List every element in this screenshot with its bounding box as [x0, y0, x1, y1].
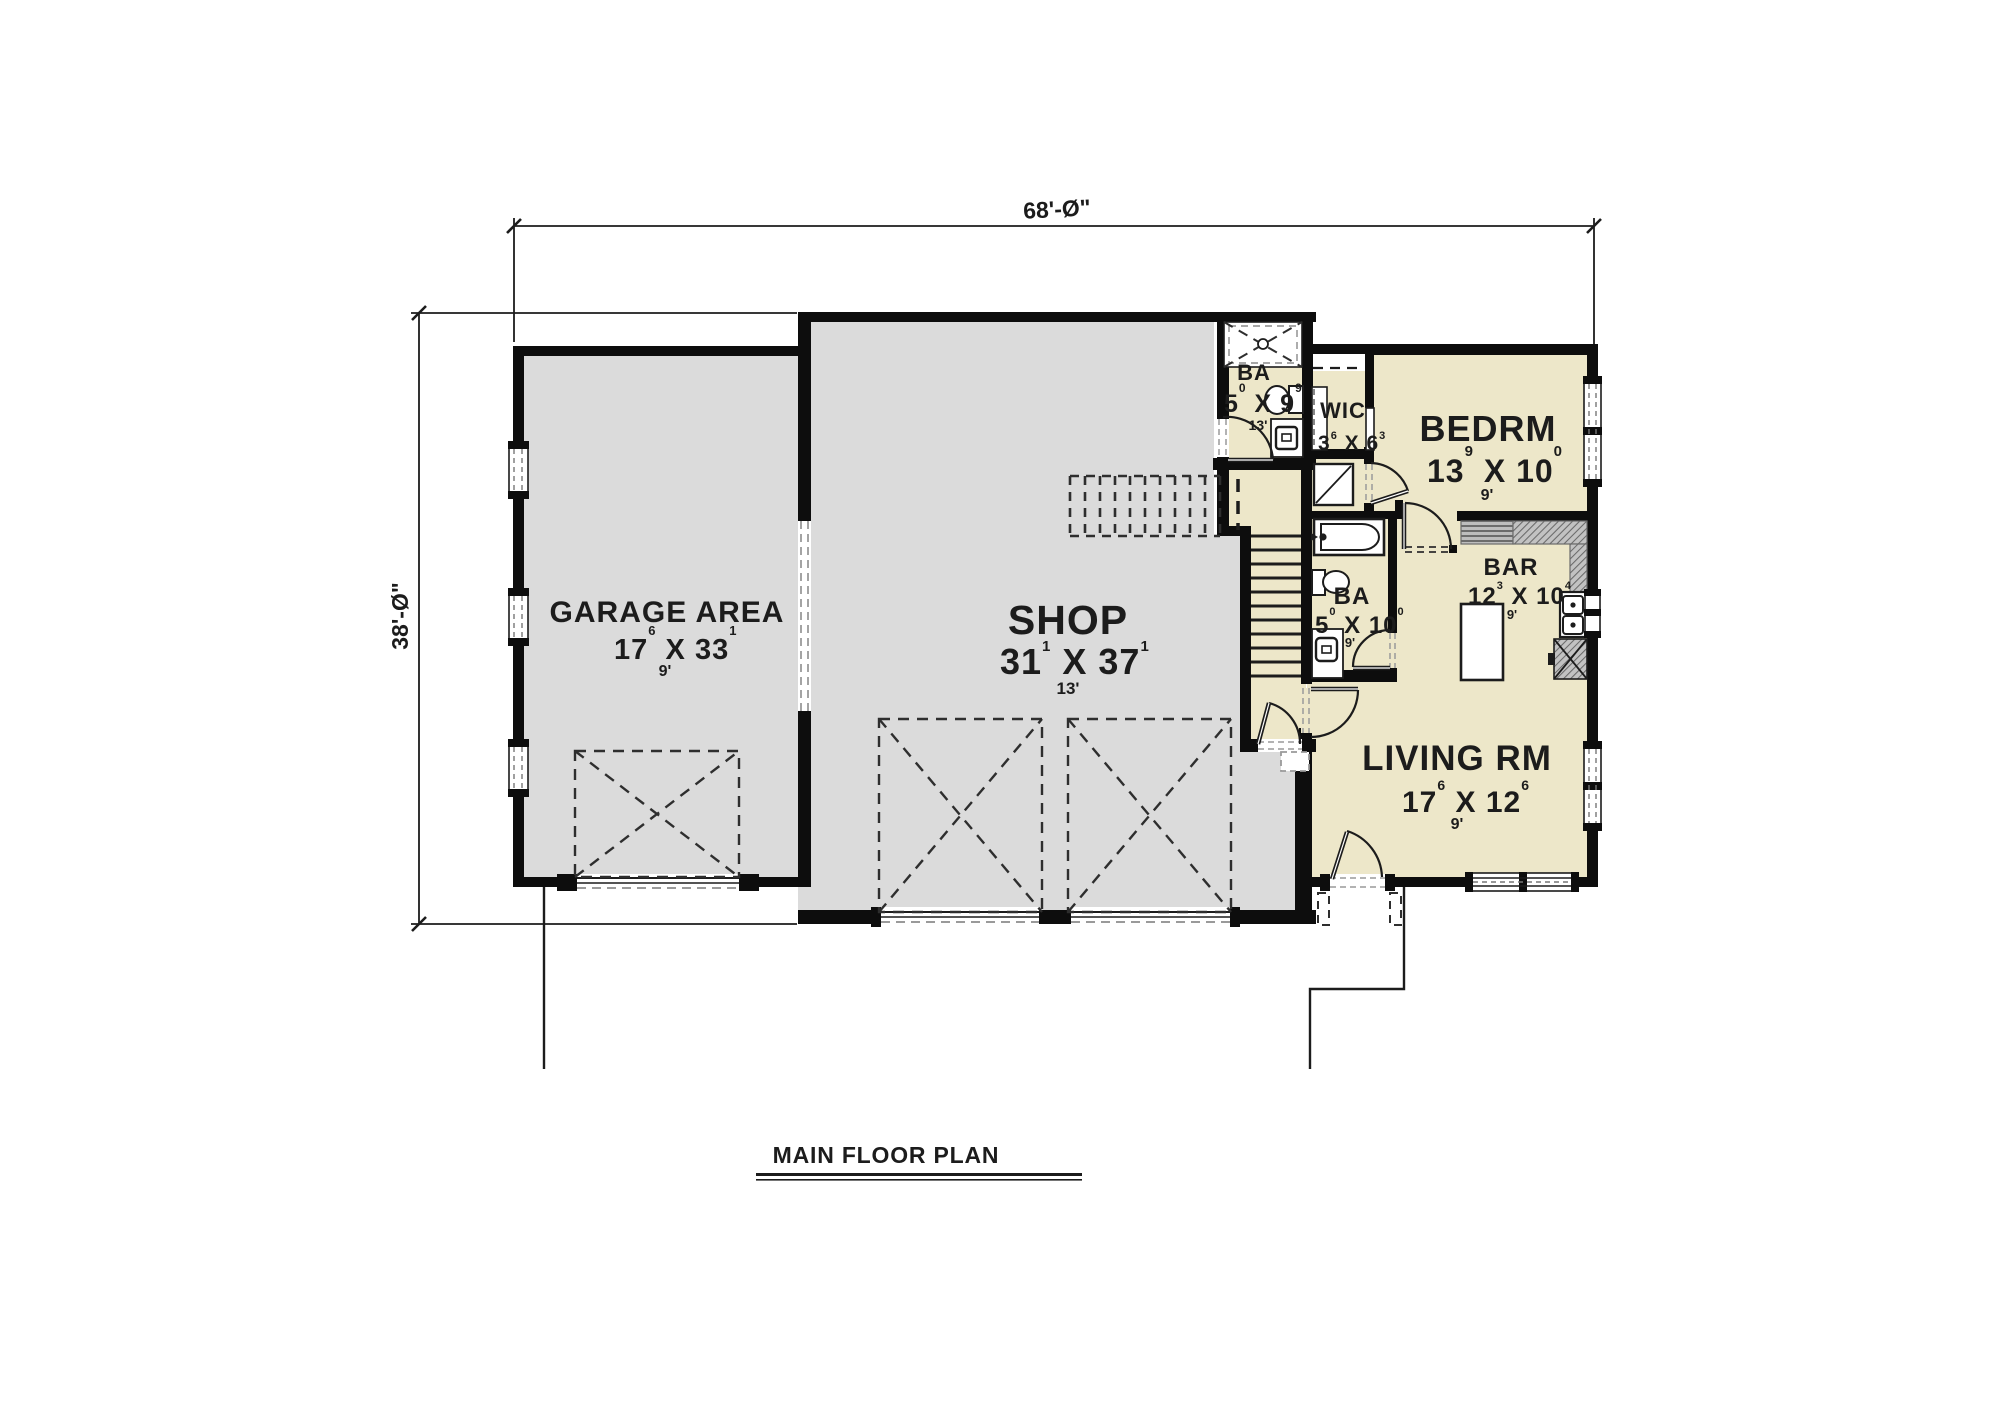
- svg-text:13': 13': [1249, 417, 1268, 433]
- svg-text:311 X 371: 311 X 371: [1000, 638, 1150, 682]
- svg-text:9': 9': [1481, 487, 1494, 504]
- svg-text:GARAGE AREA: GARAGE AREA: [550, 596, 785, 629]
- svg-text:68'-Ø": 68'-Ø": [1023, 194, 1092, 223]
- svg-text:MAIN FLOOR PLAN: MAIN FLOOR PLAN: [773, 1142, 1000, 1168]
- svg-text:LIVING RM: LIVING RM: [1362, 739, 1552, 778]
- svg-text:9': 9': [1507, 607, 1517, 622]
- svg-text:SHOP: SHOP: [1008, 597, 1128, 643]
- svg-text:BEDRM: BEDRM: [1420, 408, 1557, 449]
- svg-text:13': 13': [1057, 679, 1080, 698]
- svg-text:9': 9': [659, 663, 672, 680]
- svg-text:36 X 63: 36 X 63: [1318, 430, 1386, 455]
- svg-text:38'-Ø": 38'-Ø": [387, 582, 413, 650]
- svg-text:WIC: WIC: [1320, 398, 1366, 423]
- svg-text:123 X 104: 123 X 104: [1468, 580, 1572, 610]
- svg-text:9': 9': [1451, 816, 1464, 833]
- svg-text:9': 9': [1345, 635, 1355, 650]
- svg-text:BAR: BAR: [1484, 554, 1539, 581]
- svg-text:BA: BA: [1334, 583, 1371, 610]
